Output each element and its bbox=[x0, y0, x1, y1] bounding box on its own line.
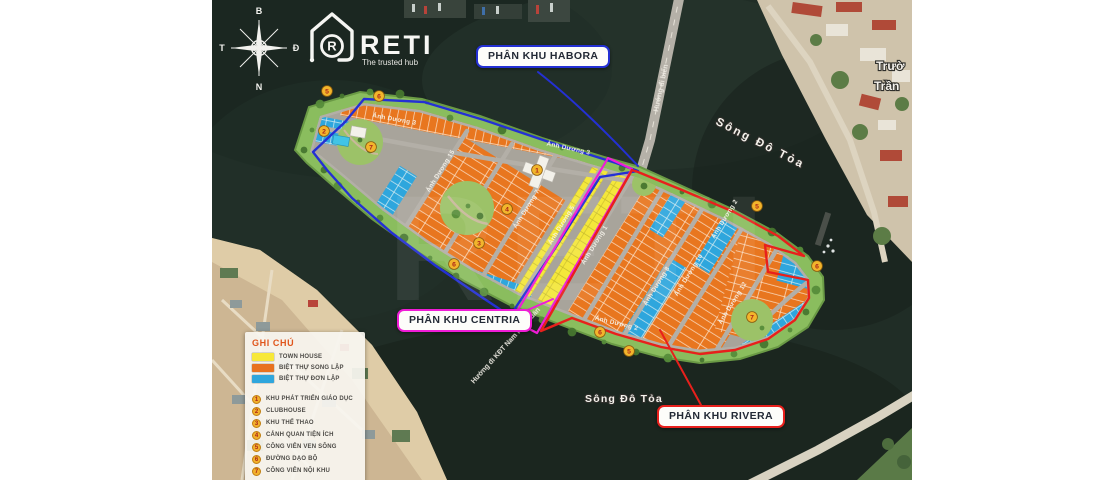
map-marker-number: 5 bbox=[755, 203, 759, 210]
tree bbox=[700, 358, 705, 363]
legend-amenity-number: 1 bbox=[252, 395, 261, 404]
legend-swatch-label: BIỆT THỰ SONG LẬP bbox=[279, 365, 344, 372]
legend-amenity-number: 3 bbox=[252, 419, 261, 428]
legend-swatch-list: TOWN HOUSEBIỆT THỰ SONG LẬPBIỆT THỰ ĐƠN … bbox=[252, 353, 358, 383]
legend-amenity-list: 1KHU PHÁT TRIỂN GIÁO DỤC2CLUBHOUSE3KHU T… bbox=[252, 395, 358, 476]
legend-amenity-number: 7 bbox=[252, 467, 261, 476]
callout-centria: PHÂN KHU CENTRIA bbox=[397, 309, 532, 332]
tree bbox=[731, 351, 738, 358]
legend-swatch-row: TOWN HOUSE bbox=[252, 353, 358, 361]
legend-amenity-number: 6 bbox=[252, 455, 261, 464]
map-marker-number: 1 bbox=[535, 167, 539, 174]
map-marker-2: 2 bbox=[319, 126, 330, 137]
legend-amenity-number: 5 bbox=[252, 443, 261, 452]
legend-swatch-label: BIỆT THỰ ĐƠN LẬP bbox=[279, 376, 340, 383]
map-marker-number: 6 bbox=[452, 261, 456, 268]
tree bbox=[340, 94, 345, 99]
watermark-text: RETI bbox=[387, 164, 777, 332]
map-marker-5: 5 bbox=[752, 201, 763, 212]
tree bbox=[310, 128, 315, 133]
map-marker-5: 5 bbox=[322, 86, 333, 97]
callout-habora: PHÂN KHU HABORA bbox=[476, 45, 610, 68]
compass-west-label: T bbox=[219, 43, 225, 53]
legend-color-swatch bbox=[252, 353, 274, 361]
callout-habora-label: PHÂN KHU HABORA bbox=[488, 50, 598, 62]
map-marker-7: 7 bbox=[747, 312, 758, 323]
map-marker-4: 4 bbox=[502, 204, 513, 215]
map-marker-6: 6 bbox=[595, 327, 606, 338]
masterplan-screenshot: RETI Sông Đô Tỏa Sông Đô Tỏa Trườ Trần H… bbox=[0, 0, 1120, 480]
compass-south-label: N bbox=[256, 82, 263, 92]
legend-amenity-row: 5CÔNG VIÊN VEN SÔNG bbox=[252, 443, 358, 452]
map-marker-number: 6 bbox=[377, 93, 381, 100]
legend-amenity-number: 4 bbox=[252, 431, 261, 440]
legend-swatch-row: BIỆT THỰ SONG LẬP bbox=[252, 364, 358, 372]
map-marker-number: 6 bbox=[815, 263, 819, 270]
legend-amenity-label: KHU THỂ THAO bbox=[266, 420, 314, 427]
compass-east-label: Đ bbox=[293, 43, 300, 53]
legend-panel: GHI CHÚ TOWN HOUSEBIỆT THỰ SONG LẬPBIỆT … bbox=[245, 332, 365, 480]
map-marker-number: 4 bbox=[505, 206, 509, 213]
map-marker-number: 7 bbox=[369, 144, 373, 151]
satellite-masterplan-map: RETI Sông Đô Tỏa Sông Đô Tỏa Trườ Trần H… bbox=[212, 0, 912, 480]
legend-amenity-row: 3KHU THỂ THAO bbox=[252, 419, 358, 428]
map-marker-1: 1 bbox=[532, 165, 543, 176]
legend-color-swatch bbox=[252, 364, 274, 372]
legend-title: GHI CHÚ bbox=[252, 338, 358, 348]
offmap-label-line1: Trườ bbox=[876, 59, 905, 73]
callout-rivera: PHÂN KHU RIVERA bbox=[657, 405, 785, 428]
legend-amenity-row: 7CÔNG VIÊN NỘI KHU bbox=[252, 467, 358, 476]
tree bbox=[447, 115, 454, 122]
legend-amenity-label: KHU PHÁT TRIỂN GIÁO DỤC bbox=[266, 396, 353, 403]
legend-amenity-label: ĐƯỜNG DẠO BỘ bbox=[266, 456, 318, 463]
legend-color-swatch bbox=[252, 375, 274, 383]
legend-amenity-row: 1KHU PHÁT TRIỂN GIÁO DỤC bbox=[252, 395, 358, 404]
callout-centria-label: PHÂN KHU CENTRIA bbox=[409, 314, 520, 326]
tree bbox=[358, 138, 363, 143]
offmap-label-line2: Trần bbox=[874, 79, 899, 93]
reti-wordmark: RETI bbox=[360, 30, 434, 60]
legend-swatch-label: TOWN HOUSE bbox=[279, 354, 322, 361]
map-marker-number: 3 bbox=[477, 240, 481, 247]
legend-amenity-label: CLUBHOUSE bbox=[266, 408, 306, 415]
map-marker-number: 5 bbox=[627, 348, 631, 355]
legend-amenity-label: CẢNH QUAN TIỆN ÍCH bbox=[266, 432, 334, 439]
compass-north-label: B bbox=[256, 6, 263, 16]
map-marker-number: 6 bbox=[598, 329, 602, 336]
map-marker-number: 2 bbox=[322, 128, 326, 135]
legend-amenity-number: 2 bbox=[252, 407, 261, 416]
tree bbox=[316, 100, 325, 109]
reti-tagline: The trusted hub bbox=[362, 58, 419, 67]
map-marker-7: 7 bbox=[366, 142, 377, 153]
legend-amenity-row: 6ĐƯỜNG DẠO BỘ bbox=[252, 455, 358, 464]
reti-monogram: R bbox=[327, 39, 337, 54]
tree bbox=[396, 90, 405, 99]
legend-amenity-row: 2CLUBHOUSE bbox=[252, 407, 358, 416]
map-marker-number: 7 bbox=[750, 314, 754, 321]
legend-amenity-row: 4CẢNH QUAN TIỆN ÍCH bbox=[252, 431, 358, 440]
map-marker-number: 5 bbox=[325, 88, 329, 95]
tree bbox=[301, 147, 308, 154]
tree bbox=[602, 340, 607, 345]
tree bbox=[788, 328, 793, 333]
tree bbox=[367, 89, 374, 96]
legend-amenity-label: CÔNG VIÊN NỘI KHU bbox=[266, 468, 330, 475]
legend-amenity-label: CÔNG VIÊN VEN SÔNG bbox=[266, 444, 337, 451]
tree bbox=[803, 309, 810, 316]
tree bbox=[812, 286, 821, 295]
map-marker-3: 3 bbox=[474, 238, 485, 249]
tree bbox=[664, 354, 673, 363]
map-marker-6: 6 bbox=[374, 91, 385, 102]
callout-rivera-label: PHÂN KHU RIVERA bbox=[669, 410, 773, 422]
map-marker-6: 6 bbox=[812, 261, 823, 272]
river-label-bottom: Sông Đô Tỏa bbox=[585, 393, 663, 405]
legend-swatch-row: BIỆT THỰ ĐƠN LẬP bbox=[252, 375, 358, 383]
map-marker-5: 5 bbox=[624, 346, 635, 357]
map-marker-6: 6 bbox=[449, 259, 460, 270]
